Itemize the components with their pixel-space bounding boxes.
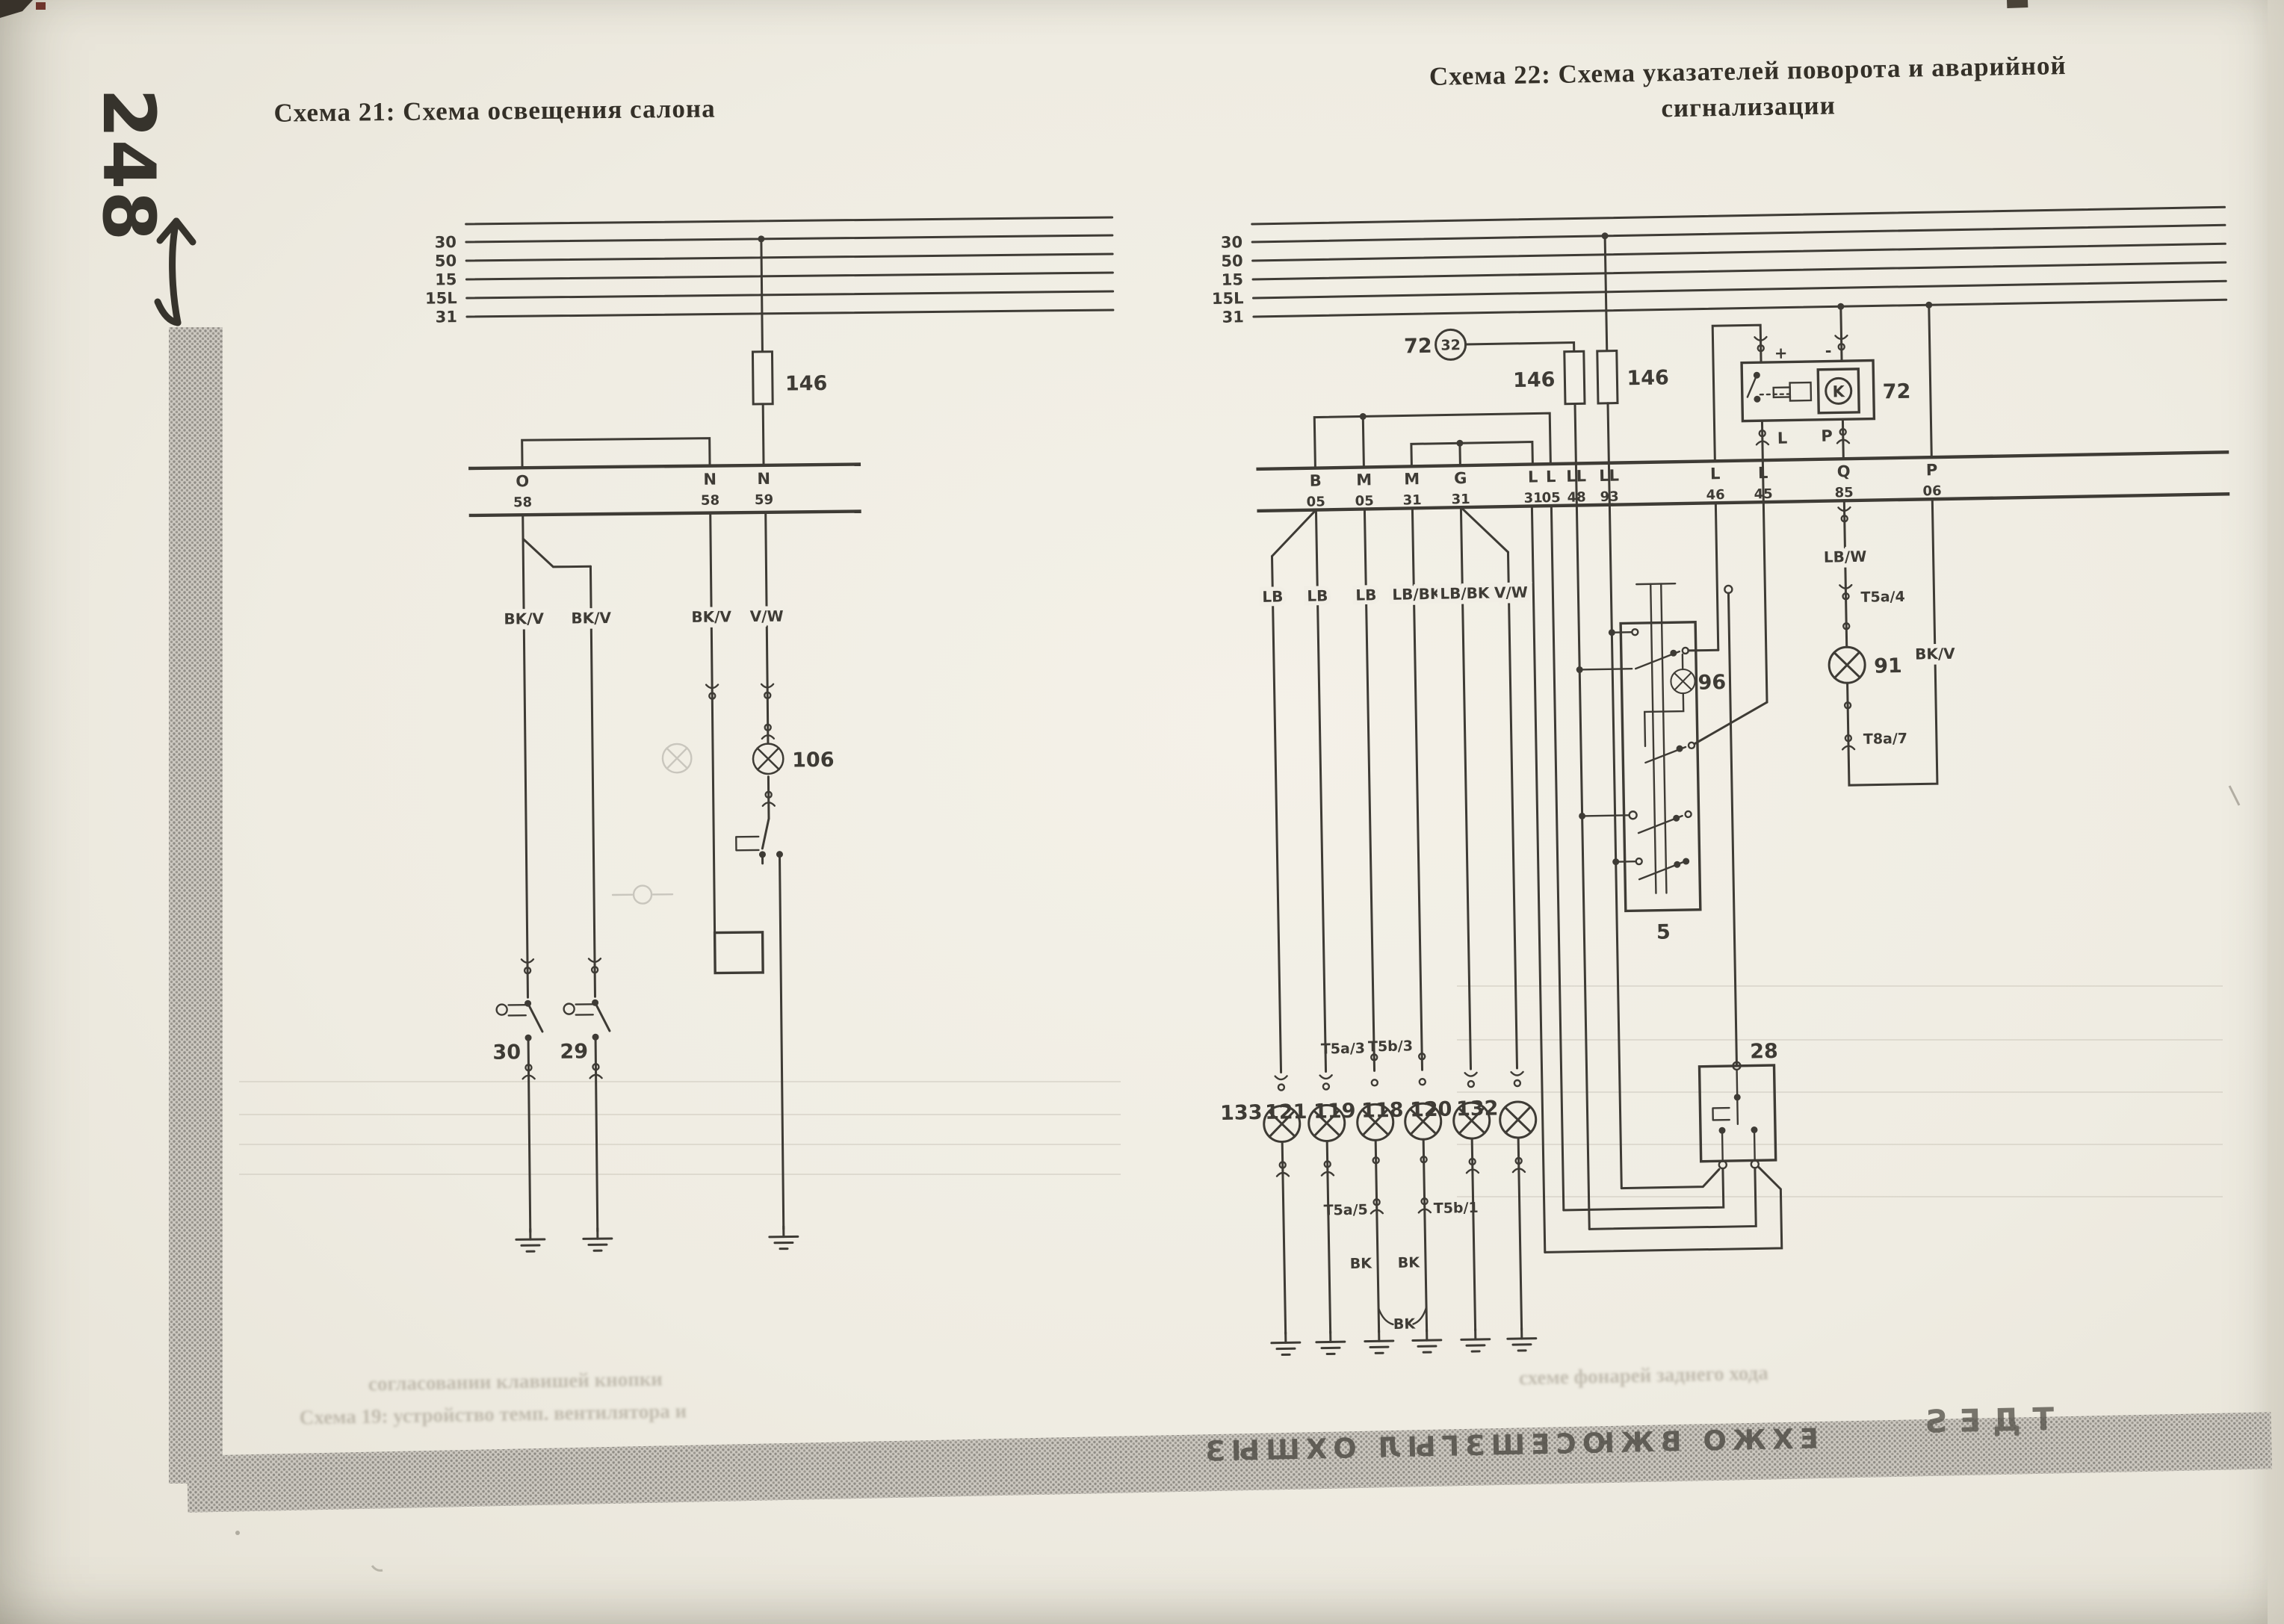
fuse-label: 146 <box>1627 366 1669 390</box>
terminal-letter: M <box>1356 471 1372 489</box>
terminal-number: 59 <box>755 492 773 508</box>
bulb-label: 133 <box>1220 1101 1263 1125</box>
wire-label: V/W <box>750 607 784 625</box>
faint-text-2: Схема 19: устройство темп. вентилятора и <box>299 1399 687 1428</box>
terminal-letter: N <box>703 471 717 489</box>
scanned-page: 248 <box>0 0 2284 1624</box>
bus-label: 15 <box>1222 270 1244 289</box>
relay-plus: + <box>1774 344 1788 362</box>
terminal-letter: Q <box>1836 462 1850 480</box>
turn-signal-switch-5: 5 96 <box>1531 460 1776 1252</box>
ground-icon <box>1316 1331 1346 1354</box>
connector-label: T5a/3 <box>1321 1041 1366 1058</box>
bus-label: 31 <box>1222 308 1244 326</box>
terminal-letter: O <box>516 472 529 490</box>
terminal-letter: L <box>1546 468 1556 486</box>
bus-label: 50 <box>1221 252 1243 270</box>
wire-label: BK/V <box>504 610 544 628</box>
connector-icon <box>1320 1075 1332 1089</box>
terminal-letter: P <box>1926 461 1938 479</box>
schema22: Схема 22: Схема указателей поворота и ав… <box>1202 48 2244 1356</box>
fuses-146-22: 146 146 <box>1511 232 1671 465</box>
wire-label: LB/W <box>1824 548 1867 566</box>
bus-lines-21: 30 50 15 15L 31 <box>424 217 1113 326</box>
margin-arrow-icon <box>158 221 193 323</box>
hazard-switch-label: 28 <box>1750 1040 1778 1064</box>
faint-text-3: схеме фонарей заднего хода <box>1519 1361 1769 1389</box>
hazard-switch-28: 28 <box>1533 585 1781 1252</box>
switch-label: 29 <box>560 1040 588 1063</box>
wire-label: LB <box>1355 586 1376 604</box>
wire-label: BK/V <box>1915 645 1955 663</box>
pilot-lamp-91: LB/W T5a/4 91 T8a/7 BK/V <box>1819 301 1958 785</box>
schema21-title: Схема 21: Схема освещения салона <box>273 94 716 128</box>
schema21: Схема 21: Схема освещения салона 30 50 1… <box>273 90 1123 1254</box>
terminal-letter: L <box>1710 465 1721 483</box>
terminal-number: 05 <box>1307 494 1325 509</box>
bus-label: 31 <box>436 308 457 326</box>
switch-30: 30 <box>492 959 545 1233</box>
lamp-label: 106 <box>792 749 835 772</box>
connector-label: T5a/5 <box>1323 1202 1368 1219</box>
ground-icon <box>1413 1330 1442 1353</box>
terminal-number: 58 <box>701 492 719 508</box>
wire-label: BK <box>1398 1254 1421 1271</box>
bulb-label: 119 <box>1313 1100 1356 1124</box>
ground-icon <box>1365 1330 1394 1354</box>
wire-label: LB <box>1262 587 1283 605</box>
halftone-bands: ЕХЖО ВЖЮСЕШЗГЫЛ ОХШЫЗ ТДЕS <box>169 327 2272 1513</box>
connector-icon <box>1511 1072 1523 1086</box>
terminal-number: 58 <box>513 495 532 510</box>
bus-label: 50 <box>435 252 457 270</box>
terminal-number: 06 <box>1922 483 1941 499</box>
schema22-title-line2: сигнализации <box>1661 90 1836 123</box>
connector-label: T8a/7 <box>1863 731 1908 748</box>
rails-22: B M M G L L LL LL L L Q P 05 05 31 31 31… <box>1256 452 2229 511</box>
wiring-diagram-canvas: ЕХЖО ВЖЮСЕШЗГЫЛ ОХШЫЗ ТДЕS согласовании … <box>0 0 2284 1624</box>
band-mirrored-text-right: ТДЕS <box>1913 1401 2055 1440</box>
ground-icon <box>1272 1332 1301 1355</box>
relay-label: 72 <box>1883 380 1911 404</box>
ghost-symbols <box>611 744 693 904</box>
ground-icon <box>1508 1328 1537 1351</box>
terminal-number: 31 <box>1523 490 1542 506</box>
sender-circle-label: 32 <box>1440 337 1461 353</box>
ground-icon <box>516 1229 545 1251</box>
bus-label: 30 <box>435 233 457 251</box>
terminal-number: 31 <box>1451 492 1470 507</box>
interior-light-unit <box>715 932 764 973</box>
bus-label: 15L <box>1212 289 1244 308</box>
connector-icon <box>1275 1076 1287 1090</box>
wire-label: LB/BK <box>1440 584 1491 603</box>
switch-label: 30 <box>492 1041 521 1064</box>
wire-label: BK/V <box>571 609 611 627</box>
sender-72-32: 72 32 <box>1404 328 1574 361</box>
left-index-band <box>169 327 223 1484</box>
switch-29: 29 <box>559 958 612 1232</box>
show-through-text: согласовании клавишей кнопки Схема 19: у… <box>299 1361 1768 1428</box>
terminal-number: 31 <box>1403 492 1422 508</box>
terminal-number: 05 <box>1541 490 1560 506</box>
sender-label: 72 <box>1404 335 1432 359</box>
lamp-label: 96 <box>1697 671 1726 695</box>
connector-label: T5b/3 <box>1368 1038 1413 1055</box>
wire-label: BK/V <box>691 607 731 626</box>
ground-icon <box>584 1228 612 1250</box>
wire-label: BK <box>1350 1255 1373 1272</box>
ground-icon <box>1461 1329 1491 1352</box>
rails-21: O N N 58 58 59 <box>468 436 861 515</box>
faint-text-1: согласовании клавишей кнопки <box>368 1368 663 1395</box>
terminal-letter: G <box>1454 469 1467 487</box>
bulb-label: 132 <box>1456 1097 1499 1121</box>
bulb-label: 120 <box>1410 1098 1452 1122</box>
bulb-label: 118 <box>1361 1099 1404 1123</box>
relay-pin-l: L <box>1777 430 1788 447</box>
wire-label: LB <box>1307 586 1328 604</box>
terminal-number: 46 <box>1706 487 1724 503</box>
fuse-146-21: 146 <box>752 235 829 465</box>
lamp-106: 106 <box>753 743 835 819</box>
bus-label: 15 <box>435 270 457 288</box>
relay-pin-p: P <box>1821 427 1833 445</box>
rail-bridges <box>1314 410 1550 468</box>
bus-label: 15L <box>425 289 457 307</box>
bulb-label: 121 <box>1265 1100 1307 1124</box>
turn-signal-bulbs: LB LB LB LB/BK LB/BK V/W T5a/3 T5b/3 133… <box>1210 506 1541 1356</box>
terminal-letter: B <box>1310 471 1322 489</box>
show-through-rules <box>239 986 2223 1197</box>
flasher-relay-72: + - K 72 L P <box>1712 302 1913 503</box>
lamp-label: 91 <box>1874 654 1902 678</box>
bus-lines-22: 30 50 15 15L 31 <box>1210 207 2226 326</box>
terminal-number: 85 <box>1834 485 1853 500</box>
connector-label: T5a/4 <box>1860 589 1905 606</box>
wire-label: V/W <box>1494 583 1528 602</box>
terminal-letter: N <box>757 470 770 488</box>
wires-21: BK/V BK/V BK/V V/W <box>503 512 787 998</box>
schema22-title-line1: Схема 22: Схема указателей поворота и ав… <box>1429 51 2067 91</box>
bus-label: 30 <box>1221 233 1243 252</box>
scan-artifacts <box>0 0 2284 1624</box>
fuse-label: 146 <box>785 372 828 396</box>
connector-label: T5b/1 <box>1434 1200 1479 1217</box>
terminal-letter: M <box>1404 470 1420 488</box>
wire-label: LB/BK <box>1392 585 1443 604</box>
connector-icon <box>1465 1073 1477 1087</box>
door-switch <box>736 819 787 1230</box>
fuse-label: 146 <box>1513 368 1556 392</box>
switch-unit-label: 5 <box>1656 920 1671 943</box>
terminal-letter: L <box>1528 468 1538 486</box>
relay-symbol: K <box>1832 382 1845 400</box>
ground-icon <box>770 1226 798 1248</box>
relay-minus: - <box>1825 342 1832 360</box>
terminal-number: 05 <box>1355 493 1374 509</box>
